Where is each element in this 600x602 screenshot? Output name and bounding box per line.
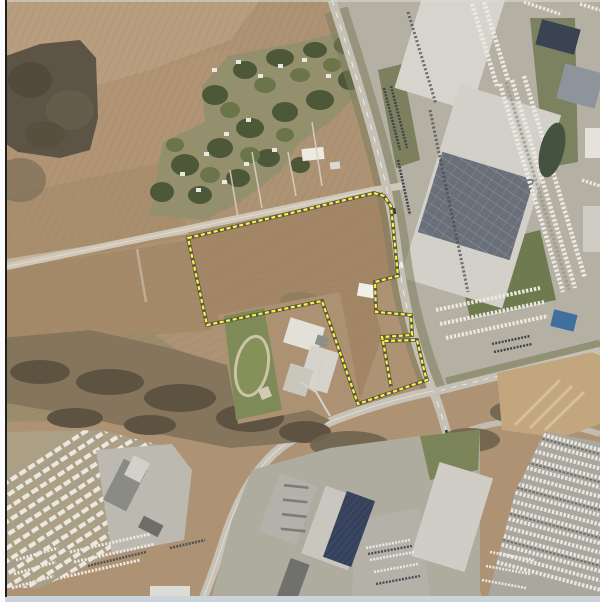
barn-building [301,147,324,161]
left-border-line [5,0,7,597]
bottom-strip [0,596,600,602]
aerial-map-image [0,0,600,602]
left-margin [0,0,5,602]
aerial-canvas [0,0,600,602]
top-strip [7,0,600,2]
